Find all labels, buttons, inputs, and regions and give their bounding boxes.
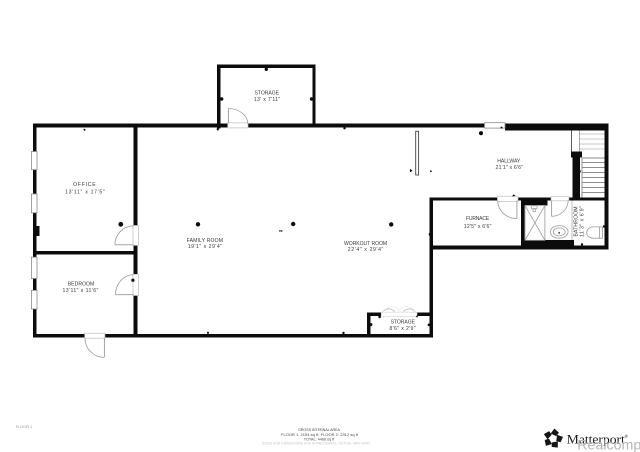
svg-text:STORAGE: STORAGE bbox=[391, 320, 416, 326]
svg-text:11'3" x 6'9": 11'3" x 6'9" bbox=[580, 206, 586, 237]
svg-text:Realcomp: Realcomp bbox=[577, 438, 640, 452]
svg-text:BEDROOM: BEDROOM bbox=[68, 281, 95, 287]
svg-text:BATHROOM: BATHROOM bbox=[573, 206, 579, 236]
svg-text:SIZES AND DIMENSIONS ARE APPRO: SIZES AND DIMENSIONS ARE APPROXIMATE, AC… bbox=[262, 441, 371, 445]
svg-text:OFFICE: OFFICE bbox=[73, 182, 96, 188]
svg-text:HALLWAY: HALLWAY bbox=[497, 158, 521, 164]
svg-text:STORAGE: STORAGE bbox=[255, 90, 280, 96]
svg-text:21'1" x 6'6": 21'1" x 6'6" bbox=[496, 165, 524, 171]
svg-text:FLOOR 1: 2154 sq ft, FLOOR 2:: FLOOR 1: 2154 sq ft, FLOOR 2: 2312 sq ft bbox=[281, 432, 359, 437]
svg-text:19'1" x 29'4": 19'1" x 29'4" bbox=[188, 244, 222, 250]
svg-text:13'11" x 11'6": 13'11" x 11'6" bbox=[62, 288, 98, 294]
svg-text:12'5" x 6'6": 12'5" x 6'6" bbox=[464, 224, 492, 230]
svg-text:13' x 7'11": 13' x 7'11" bbox=[254, 97, 281, 103]
svg-text:FURNACE: FURNACE bbox=[466, 216, 490, 222]
svg-text:22'4" x 29'4": 22'4" x 29'4" bbox=[348, 247, 384, 253]
svg-text:FLOOR 1: FLOOR 1 bbox=[16, 424, 33, 429]
svg-text:13'11" x 17'5": 13'11" x 17'5" bbox=[65, 190, 105, 196]
svg-text:8'6" x 2'9": 8'6" x 2'9" bbox=[389, 326, 415, 332]
